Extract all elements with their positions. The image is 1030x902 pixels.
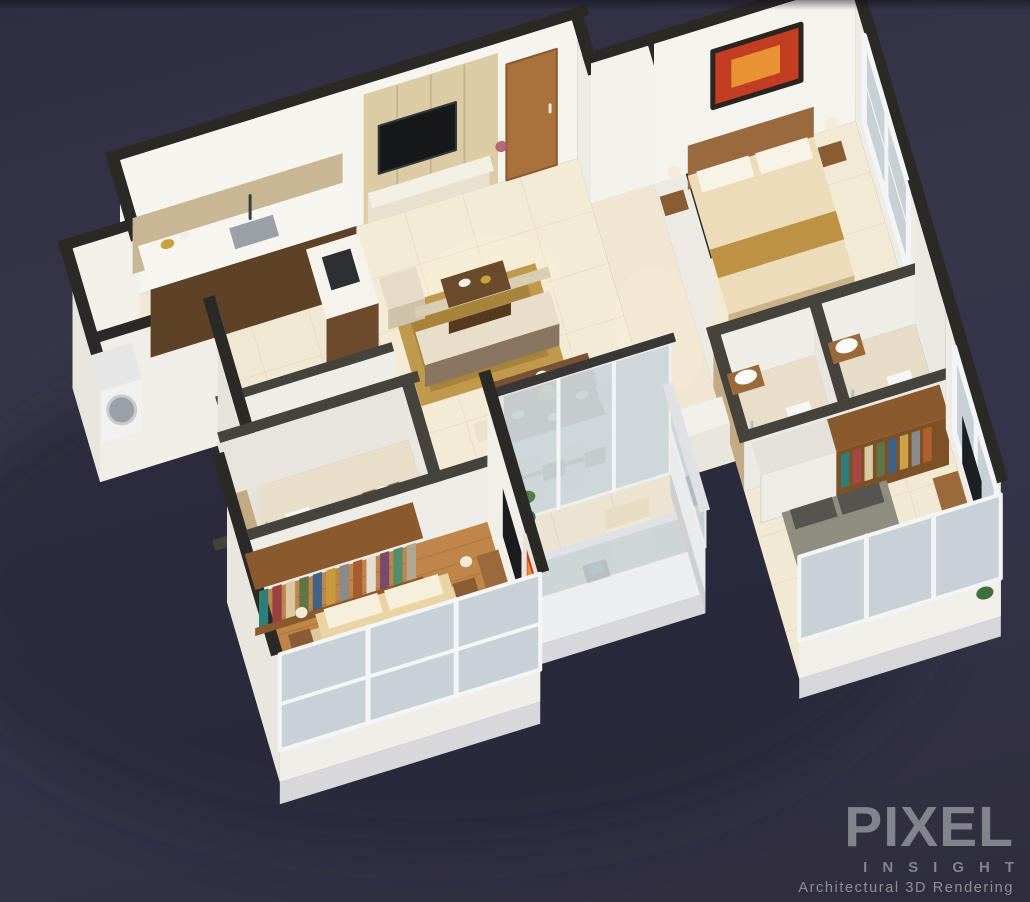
watermark-subtitle: INSIGHT [798,859,1029,876]
bedroom3-clothes-4 [876,441,884,478]
bedroom3-clothes-2 [853,448,861,485]
bedroom3-clothes-6 [900,434,908,471]
master-clothes-10 [380,551,389,590]
master-clothes-12 [407,543,416,582]
master-clothes-6 [326,568,335,607]
bedroom3-clothes-5 [888,437,896,474]
watermark-tagline: Architectural 3D Rendering [798,880,1014,896]
floor-plan-render [0,0,1030,902]
watermark: PIXEL INSIGHT Architectural 3D Rendering [798,798,1014,896]
master-clothes-2 [272,584,281,623]
bedroom3-clothes-1 [841,452,849,489]
entry-jog-wall-front [591,44,654,204]
master-clothes-9 [367,555,376,594]
bedroom3-clothes-8 [923,426,931,463]
master-clothes-5 [313,572,322,611]
master-clothes-1 [259,588,268,627]
bedroom3-clothes-7 [912,430,920,467]
washing-machine-door [108,396,136,424]
entrance-door [506,49,556,181]
watermark-title: PIXEL [798,798,1014,856]
master-clothes-8 [353,559,362,598]
bedroom3-clothes-3 [865,445,873,482]
render-stage: PIXEL INSIGHT Architectural 3D Rendering [0,0,1030,902]
master-clothes-7 [340,564,349,603]
master-clothes-11 [393,547,402,586]
master-clothes-3 [286,580,295,619]
